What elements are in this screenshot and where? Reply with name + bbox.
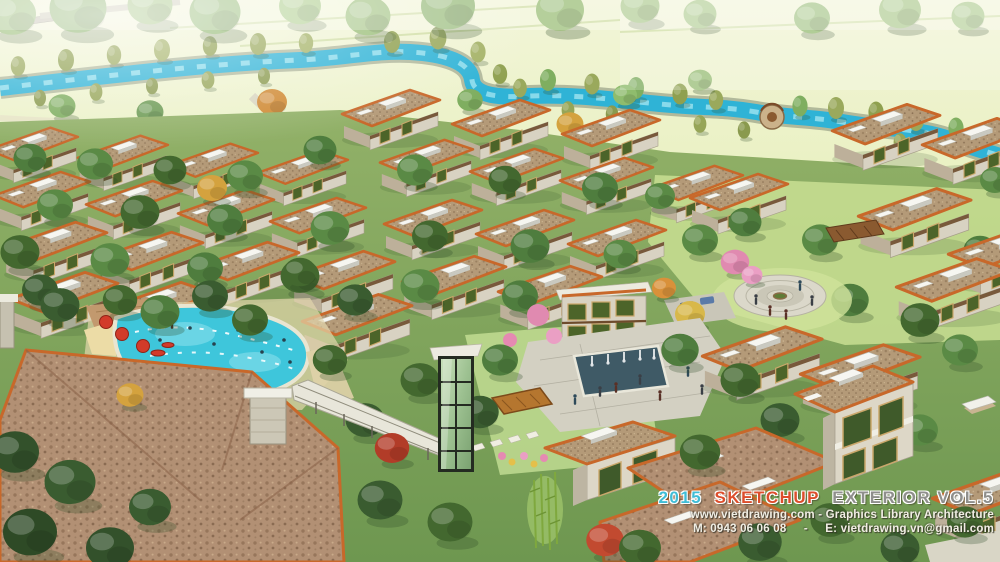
plaza-planter xyxy=(774,293,787,299)
render-canvas: 2015 SKETCHUP EXTERIOR VOL.5 www.vietdra… xyxy=(0,0,1000,562)
riverside-deck xyxy=(760,104,784,129)
scene-svg xyxy=(0,0,1000,562)
chimney xyxy=(244,388,292,444)
left-chimney xyxy=(0,298,14,348)
